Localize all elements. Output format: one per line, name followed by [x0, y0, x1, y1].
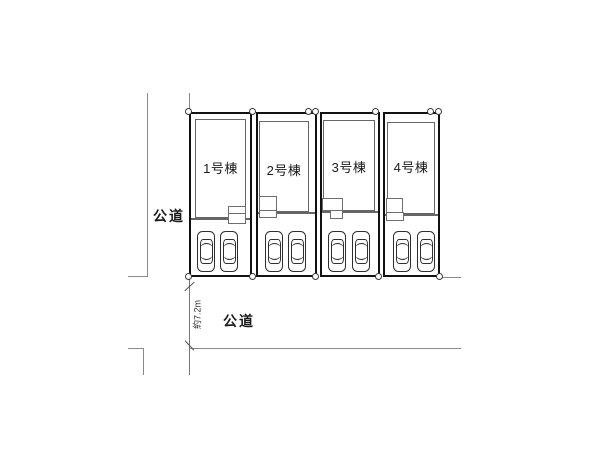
survey-point — [185, 273, 192, 280]
building-label-1: 1号棟 — [196, 158, 245, 177]
road-bottom-south-edge — [189, 348, 461, 349]
road-corner-vertical — [143, 348, 144, 375]
building-label-4: 4号棟 — [388, 157, 434, 176]
lot-2: 2号棟 — [256, 112, 317, 277]
lot-3: 3号棟 — [320, 112, 380, 277]
car-icon — [197, 231, 215, 272]
car-icon — [328, 231, 346, 272]
car-icon — [417, 231, 435, 272]
survey-point — [249, 108, 256, 115]
porch-step-1 — [228, 213, 246, 224]
lot-1: 1号棟 — [189, 112, 252, 277]
building-outline-1: 1号棟 — [195, 119, 246, 218]
survey-point — [436, 273, 443, 280]
car-icon — [220, 231, 238, 272]
car-icon — [352, 231, 370, 272]
car-icon — [288, 231, 306, 272]
building-label-2: 2号棟 — [260, 160, 308, 179]
building-label-3: 3号棟 — [324, 157, 374, 176]
survey-point — [312, 108, 319, 115]
porch-step-4 — [386, 212, 404, 221]
car-icon — [265, 231, 283, 272]
survey-point — [372, 108, 379, 115]
road-bottom-north-stub — [440, 277, 461, 278]
road-left-west-edge — [147, 93, 148, 277]
car-icon — [393, 231, 411, 272]
survey-point — [312, 273, 319, 280]
survey-point — [435, 108, 442, 115]
road-label-bottom: 公道 — [223, 311, 255, 331]
survey-point — [185, 108, 192, 115]
porch-step-3 — [330, 210, 343, 219]
survey-point — [249, 273, 256, 280]
road-west-stub-upper — [128, 276, 148, 277]
road-label-left: 公道 — [153, 206, 185, 226]
survey-point — [375, 273, 382, 280]
porch-step-2 — [259, 210, 277, 218]
lot-4: 4号棟 — [383, 112, 440, 277]
site-plan: 約7.2m 1号棟 2号棟 3号棟 4号棟 — [0, 0, 600, 449]
porch-4 — [386, 198, 403, 213]
road-corner-horizontal — [128, 348, 144, 349]
survey-point — [427, 108, 434, 115]
survey-point — [305, 108, 312, 115]
dimension-label: 約7.2m — [191, 294, 204, 336]
